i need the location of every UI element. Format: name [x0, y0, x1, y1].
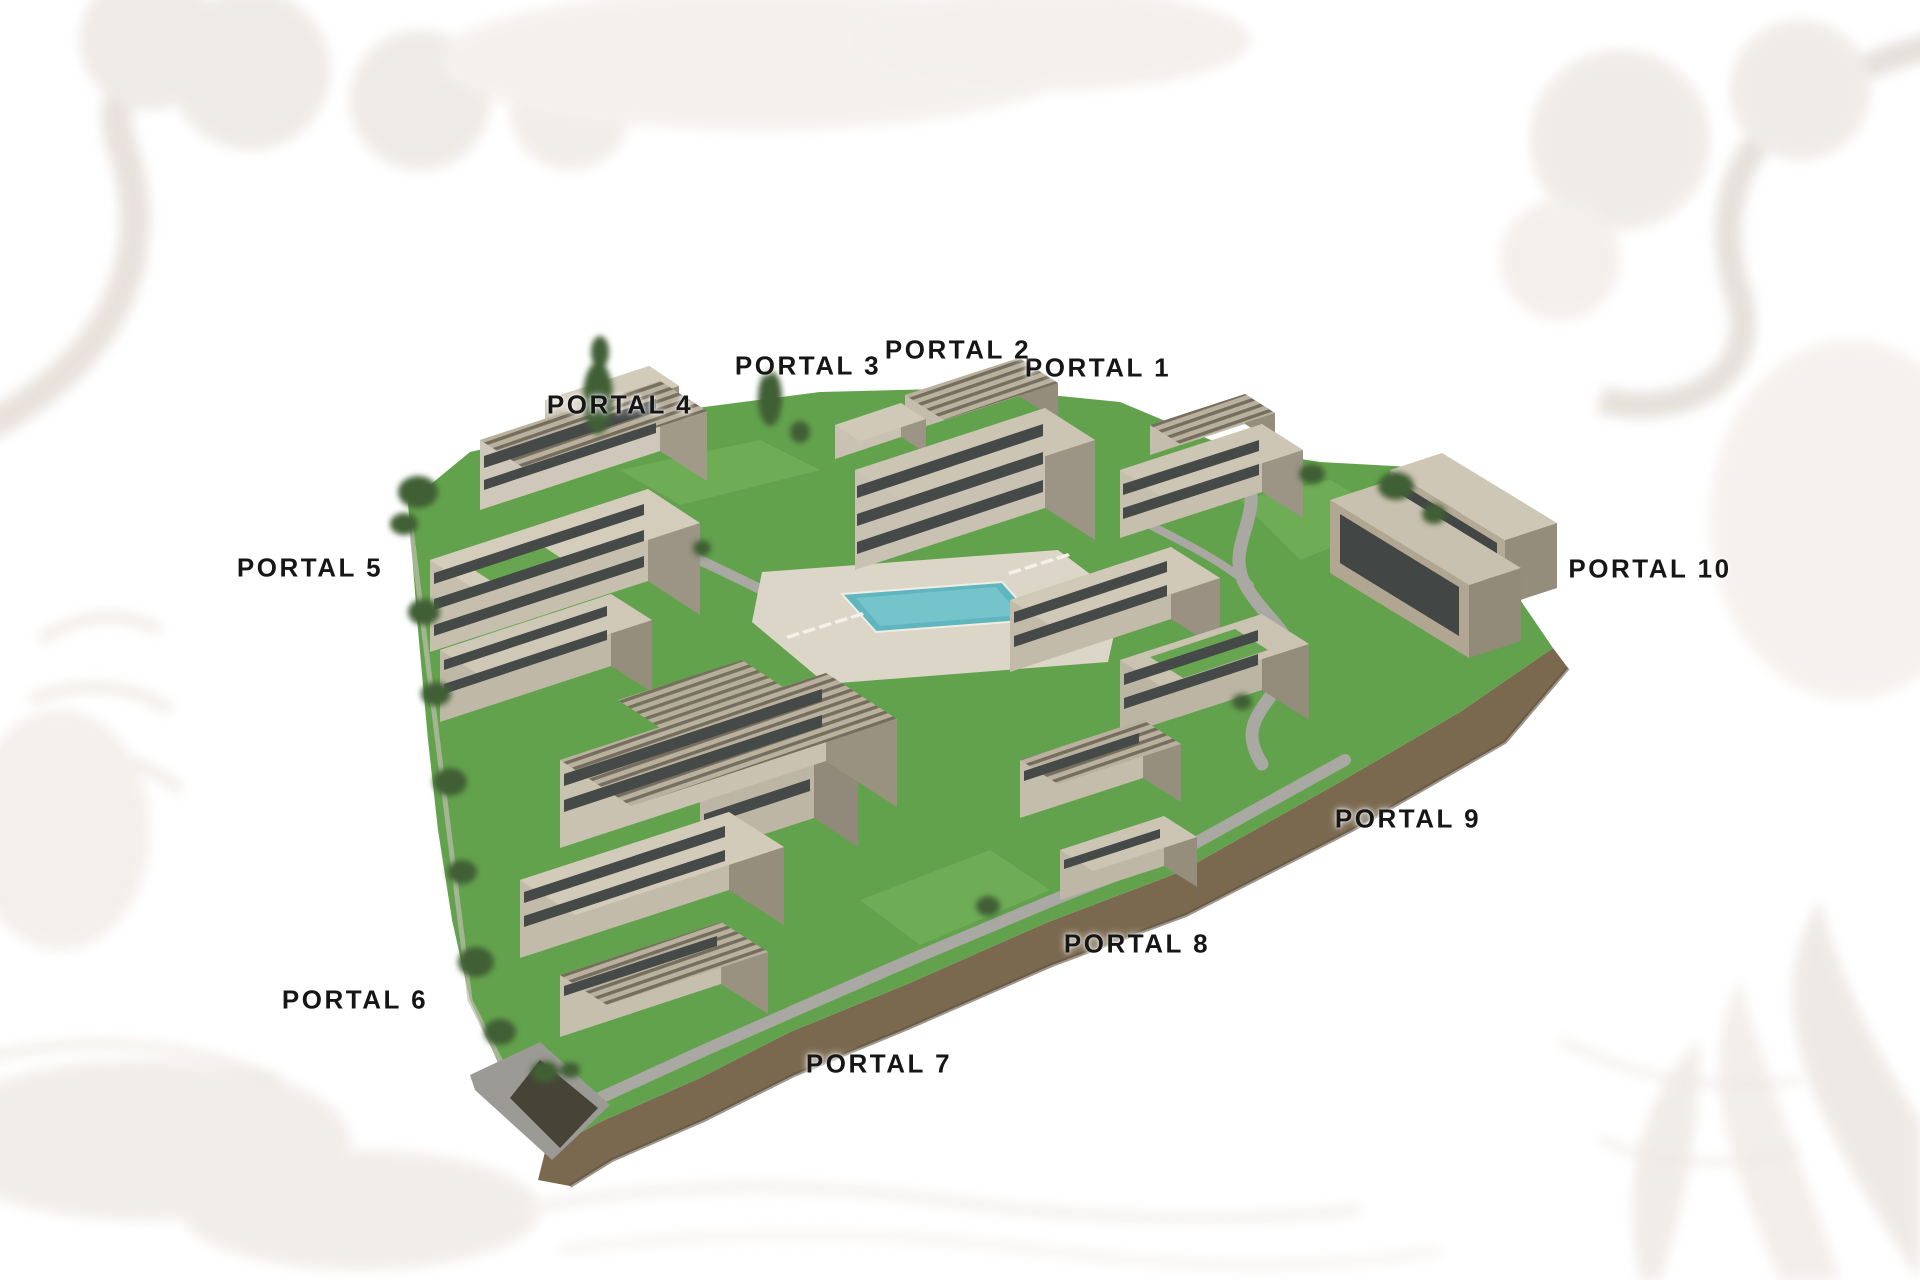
portal-7-label[interactable]: PORTAL 7	[806, 1049, 952, 1080]
portal-3-label[interactable]: PORTAL 3	[735, 351, 881, 382]
portal-5-label[interactable]: PORTAL 5	[237, 553, 383, 584]
masterplan-page: PORTAL 1 PORTAL 2 PORTAL 3 PORTAL 4 PORT…	[0, 0, 1920, 1280]
portal-1-label[interactable]: PORTAL 1	[1025, 353, 1171, 384]
portal-labels-layer: PORTAL 1 PORTAL 2 PORTAL 3 PORTAL 4 PORT…	[0, 0, 1920, 1280]
portal-2-label[interactable]: PORTAL 2	[885, 335, 1031, 366]
portal-8-label[interactable]: PORTAL 8	[1064, 929, 1210, 960]
portal-4-label[interactable]: PORTAL 4	[547, 390, 693, 421]
portal-9-label[interactable]: PORTAL 9	[1335, 804, 1481, 835]
portal-6-label[interactable]: PORTAL 6	[282, 985, 428, 1016]
portal-10-label[interactable]: PORTAL 10	[1568, 554, 1731, 585]
